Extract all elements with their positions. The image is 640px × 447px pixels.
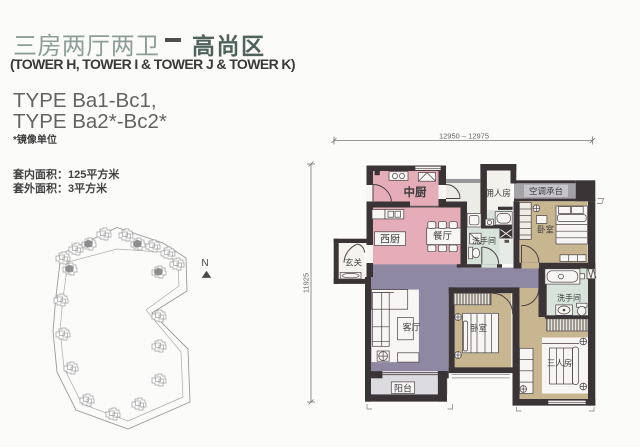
svg-text:卧室: 卧室 — [537, 225, 555, 235]
svg-text:中厨: 中厨 — [404, 185, 427, 199]
svg-text:洗手间: 洗手间 — [557, 292, 581, 302]
svg-text:洗手间: 洗手间 — [472, 236, 496, 246]
svg-text:空调承台: 空调承台 — [529, 186, 563, 196]
svg-text:N: N — [201, 258, 208, 269]
svg-text:阳台: 阳台 — [394, 382, 412, 393]
svg-text:三人房: 三人房 — [547, 358, 573, 368]
svg-text:玄关: 玄关 — [345, 258, 363, 268]
svg-text:11925: 11925 — [302, 273, 311, 293]
svg-text:佣人房: 佣人房 — [485, 188, 511, 198]
svg-text:餐厅: 餐厅 — [433, 230, 453, 242]
svg-text:西厨: 西厨 — [380, 234, 400, 246]
svg-text:卧室: 卧室 — [470, 323, 488, 333]
svg-text:12950 – 12975: 12950 – 12975 — [439, 131, 489, 140]
svg-text:客厅: 客厅 — [402, 322, 420, 333]
